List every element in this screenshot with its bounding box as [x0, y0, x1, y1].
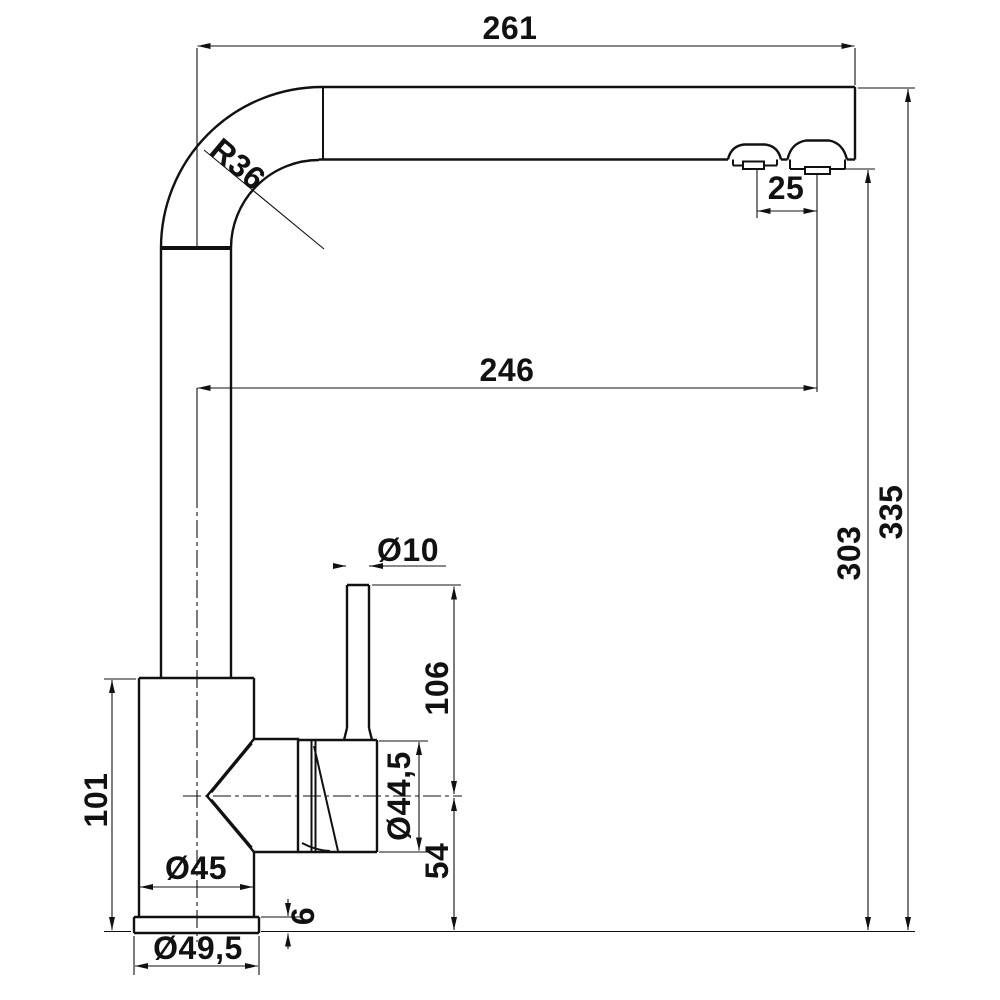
- faucet-outline: [134, 87, 855, 933]
- dim-label-spout-reach: 246: [480, 354, 535, 386]
- dim-label-overall-height: 335: [875, 485, 907, 540]
- technical-drawing-canvas: 261 246 25 R36 Ø10 106 Ø44,5 54 101 Ø45 …: [0, 0, 1000, 1000]
- outlet-slot-small: [743, 162, 764, 170]
- outlet-dome-large: [788, 141, 848, 160]
- dim-label-body-diameter: Ø45: [165, 852, 227, 884]
- dim-label-handle-top-height: 106: [421, 661, 453, 716]
- dim-label-cartridge-diameter: Ø44,5: [383, 751, 415, 841]
- faucet-line-drawing: [0, 0, 1000, 1000]
- dim-label-handle-rod-diameter: Ø10: [377, 534, 439, 566]
- dim-label-outlet-clearance: 303: [833, 526, 865, 581]
- cartridge-lever-edge: [314, 746, 338, 851]
- dim-label-body-height: 101: [80, 773, 112, 828]
- dim-label-base-diameter: Ø49,5: [153, 932, 243, 964]
- dim-label-overall-width: 261: [483, 12, 538, 44]
- dim-label-base-thickness: 6: [287, 907, 319, 925]
- outlet-slot-large: [805, 167, 830, 174]
- dim-label-spout-axis-height: 54: [421, 843, 453, 880]
- dim-label-outlet-spacing: 25: [768, 172, 805, 204]
- handle-rod: [344, 585, 372, 740]
- outlet-dome-small: [728, 145, 781, 160]
